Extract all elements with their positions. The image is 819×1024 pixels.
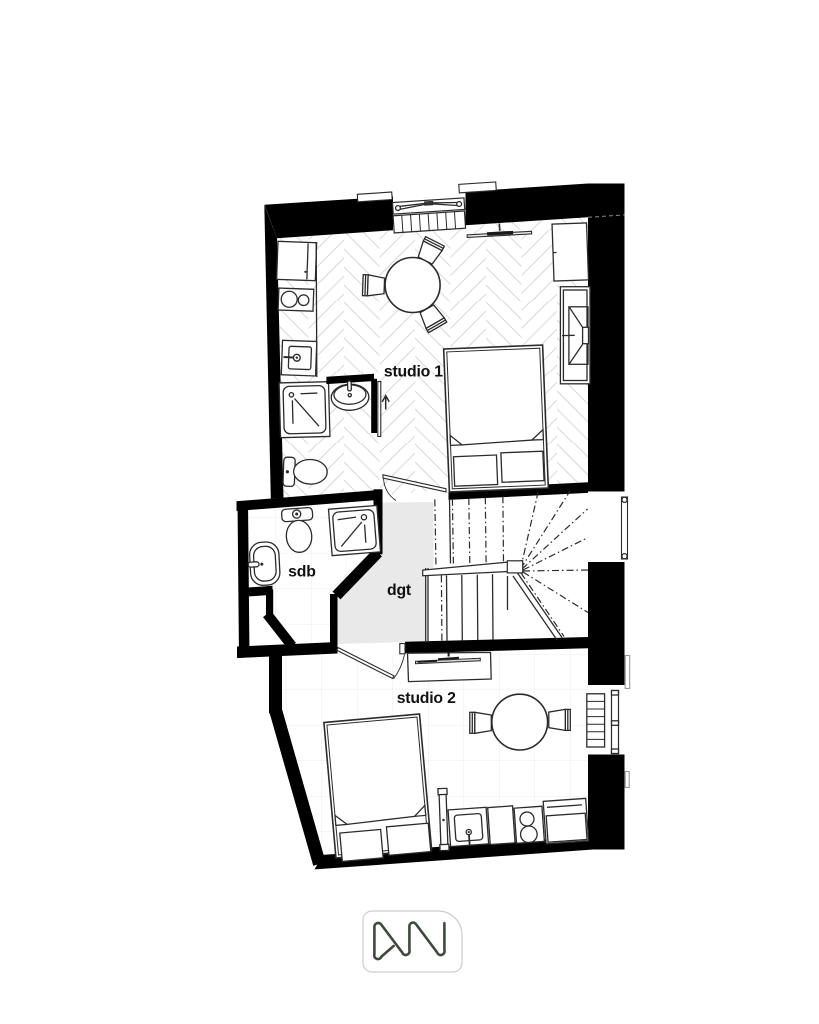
svg-text:sdb: sdb xyxy=(288,564,315,581)
svg-text:studio 2: studio 2 xyxy=(397,690,456,707)
svg-text:studio 1: studio 1 xyxy=(384,364,443,381)
svg-text:dgt: dgt xyxy=(387,582,412,599)
